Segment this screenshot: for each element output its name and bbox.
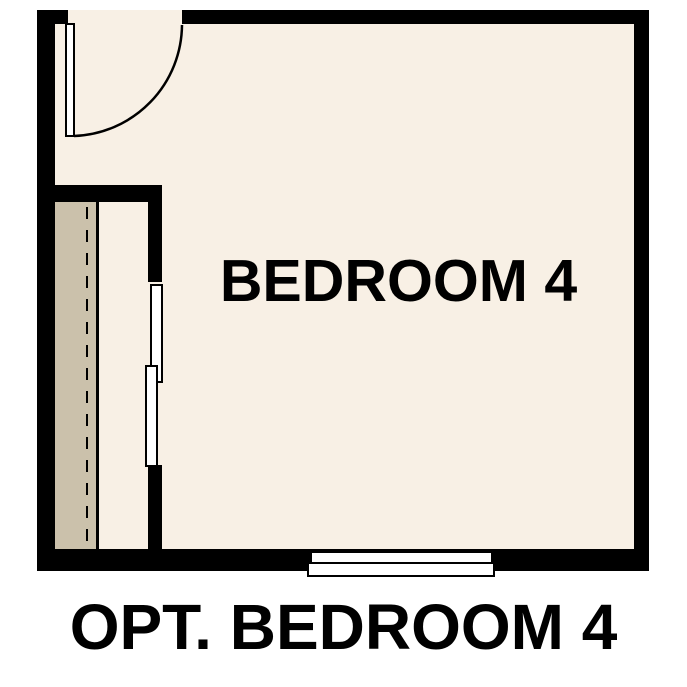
closet-bypass-door-panel-left: [145, 365, 158, 467]
closet-wall-stub-upper: [148, 202, 162, 282]
room-label: BEDROOM 4: [163, 252, 634, 311]
window-pane-lower: [307, 562, 495, 577]
closet-floor: [55, 202, 96, 549]
closet-divider-line: [96, 202, 99, 549]
entry-door-panel: [65, 23, 75, 137]
closet-shelf-dashed-line: [86, 207, 88, 545]
floorplan-canvas: BEDROOM 4 OPT. BEDROOM 4: [0, 0, 687, 687]
closet-wall-stub-lower: [148, 465, 162, 549]
entry-door-opening: [68, 10, 182, 24]
closet-wall-top: [44, 185, 162, 202]
plan-caption: OPT. BEDROOM 4: [0, 595, 687, 659]
